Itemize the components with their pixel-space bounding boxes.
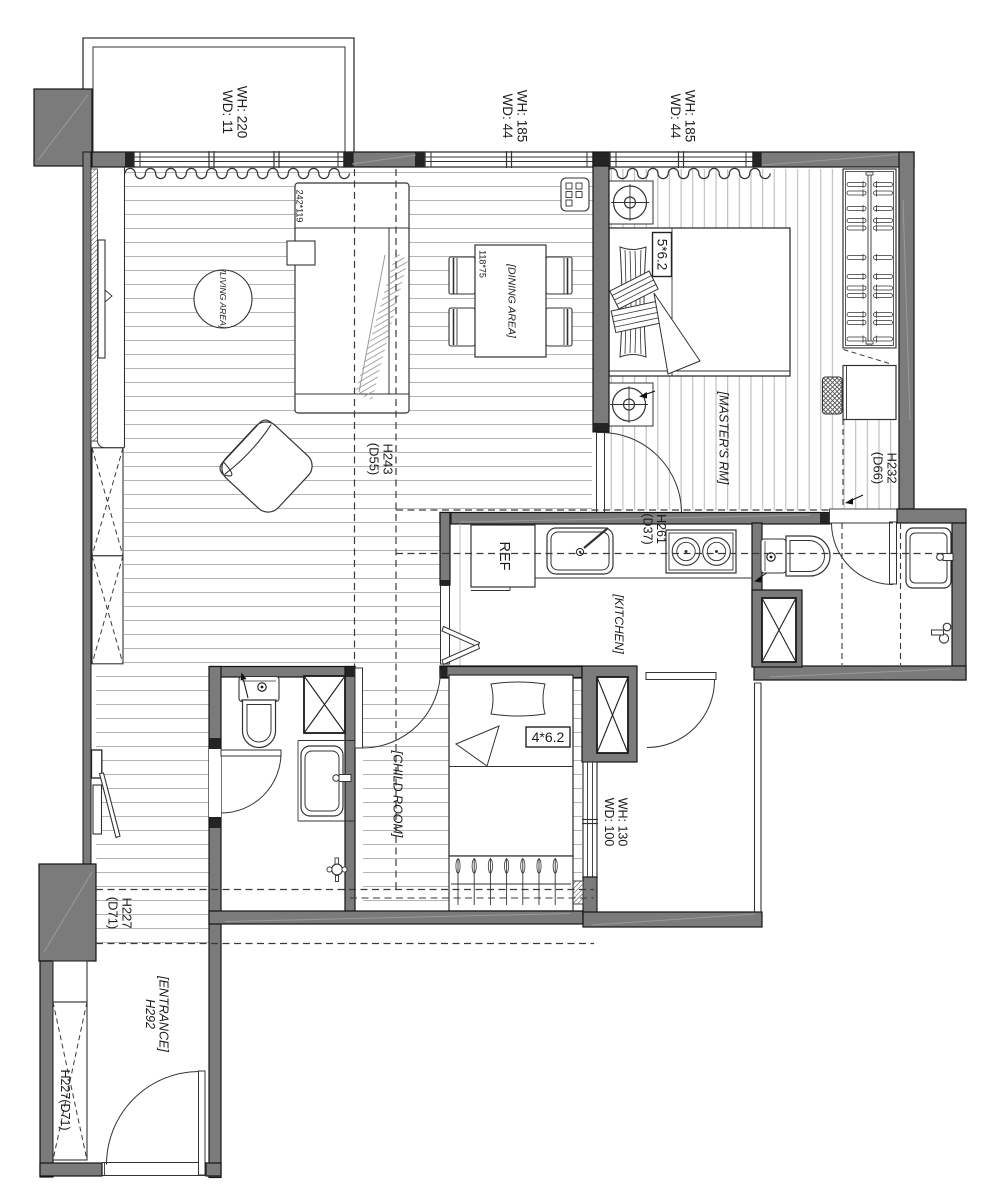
svg-text:H227: H227: [120, 897, 135, 928]
svg-text:(D55): (D55): [367, 443, 382, 476]
svg-text:REF: REF: [496, 542, 512, 571]
svg-text:WH: 130: WH: 130: [616, 798, 630, 847]
svg-text:H261: H261: [654, 514, 668, 544]
svg-text:WH: 185: WH: 185: [515, 90, 530, 143]
svg-text:(D66): (D66): [871, 452, 886, 485]
svg-text:4*6.2: 4*6.2: [532, 729, 565, 745]
svg-text:[KITCHEN]: [KITCHEN]: [612, 593, 626, 654]
svg-text:118*75: 118*75: [478, 250, 488, 278]
svg-text:5*6.2: 5*6.2: [655, 239, 670, 271]
svg-text:WH: 220: WH: 220: [235, 86, 250, 139]
svg-text:WD: 44: WD: 44: [668, 93, 683, 139]
svg-text:(D71): (D71): [106, 897, 121, 930]
svg-text:242*119: 242*119: [295, 190, 305, 223]
svg-text:WD: 100: WD: 100: [602, 798, 616, 847]
svg-text:[MASTER'S RM]: [MASTER'S RM]: [717, 391, 731, 485]
svg-text:H292: H292: [143, 999, 157, 1029]
svg-text:[LIVING AREA]: [LIVING AREA]: [218, 269, 228, 329]
svg-text:WH: 185: WH: 185: [683, 90, 698, 143]
svg-text:H243: H243: [381, 443, 396, 474]
svg-text:H232: H232: [885, 452, 900, 483]
svg-text:(D37): (D37): [641, 513, 655, 544]
svg-text:WD: 44: WD: 44: [500, 93, 515, 139]
svg-text:WD: 11: WD: 11: [220, 90, 235, 134]
svg-text:[ENTRANCE]: [ENTRANCE]: [157, 975, 171, 1052]
svg-text:[DINING AREA]: [DINING AREA]: [506, 263, 518, 339]
svg-text:H227(D71): H227(D71): [58, 1069, 72, 1130]
svg-text:[CHILD ROOM]: [CHILD ROOM]: [391, 750, 405, 838]
